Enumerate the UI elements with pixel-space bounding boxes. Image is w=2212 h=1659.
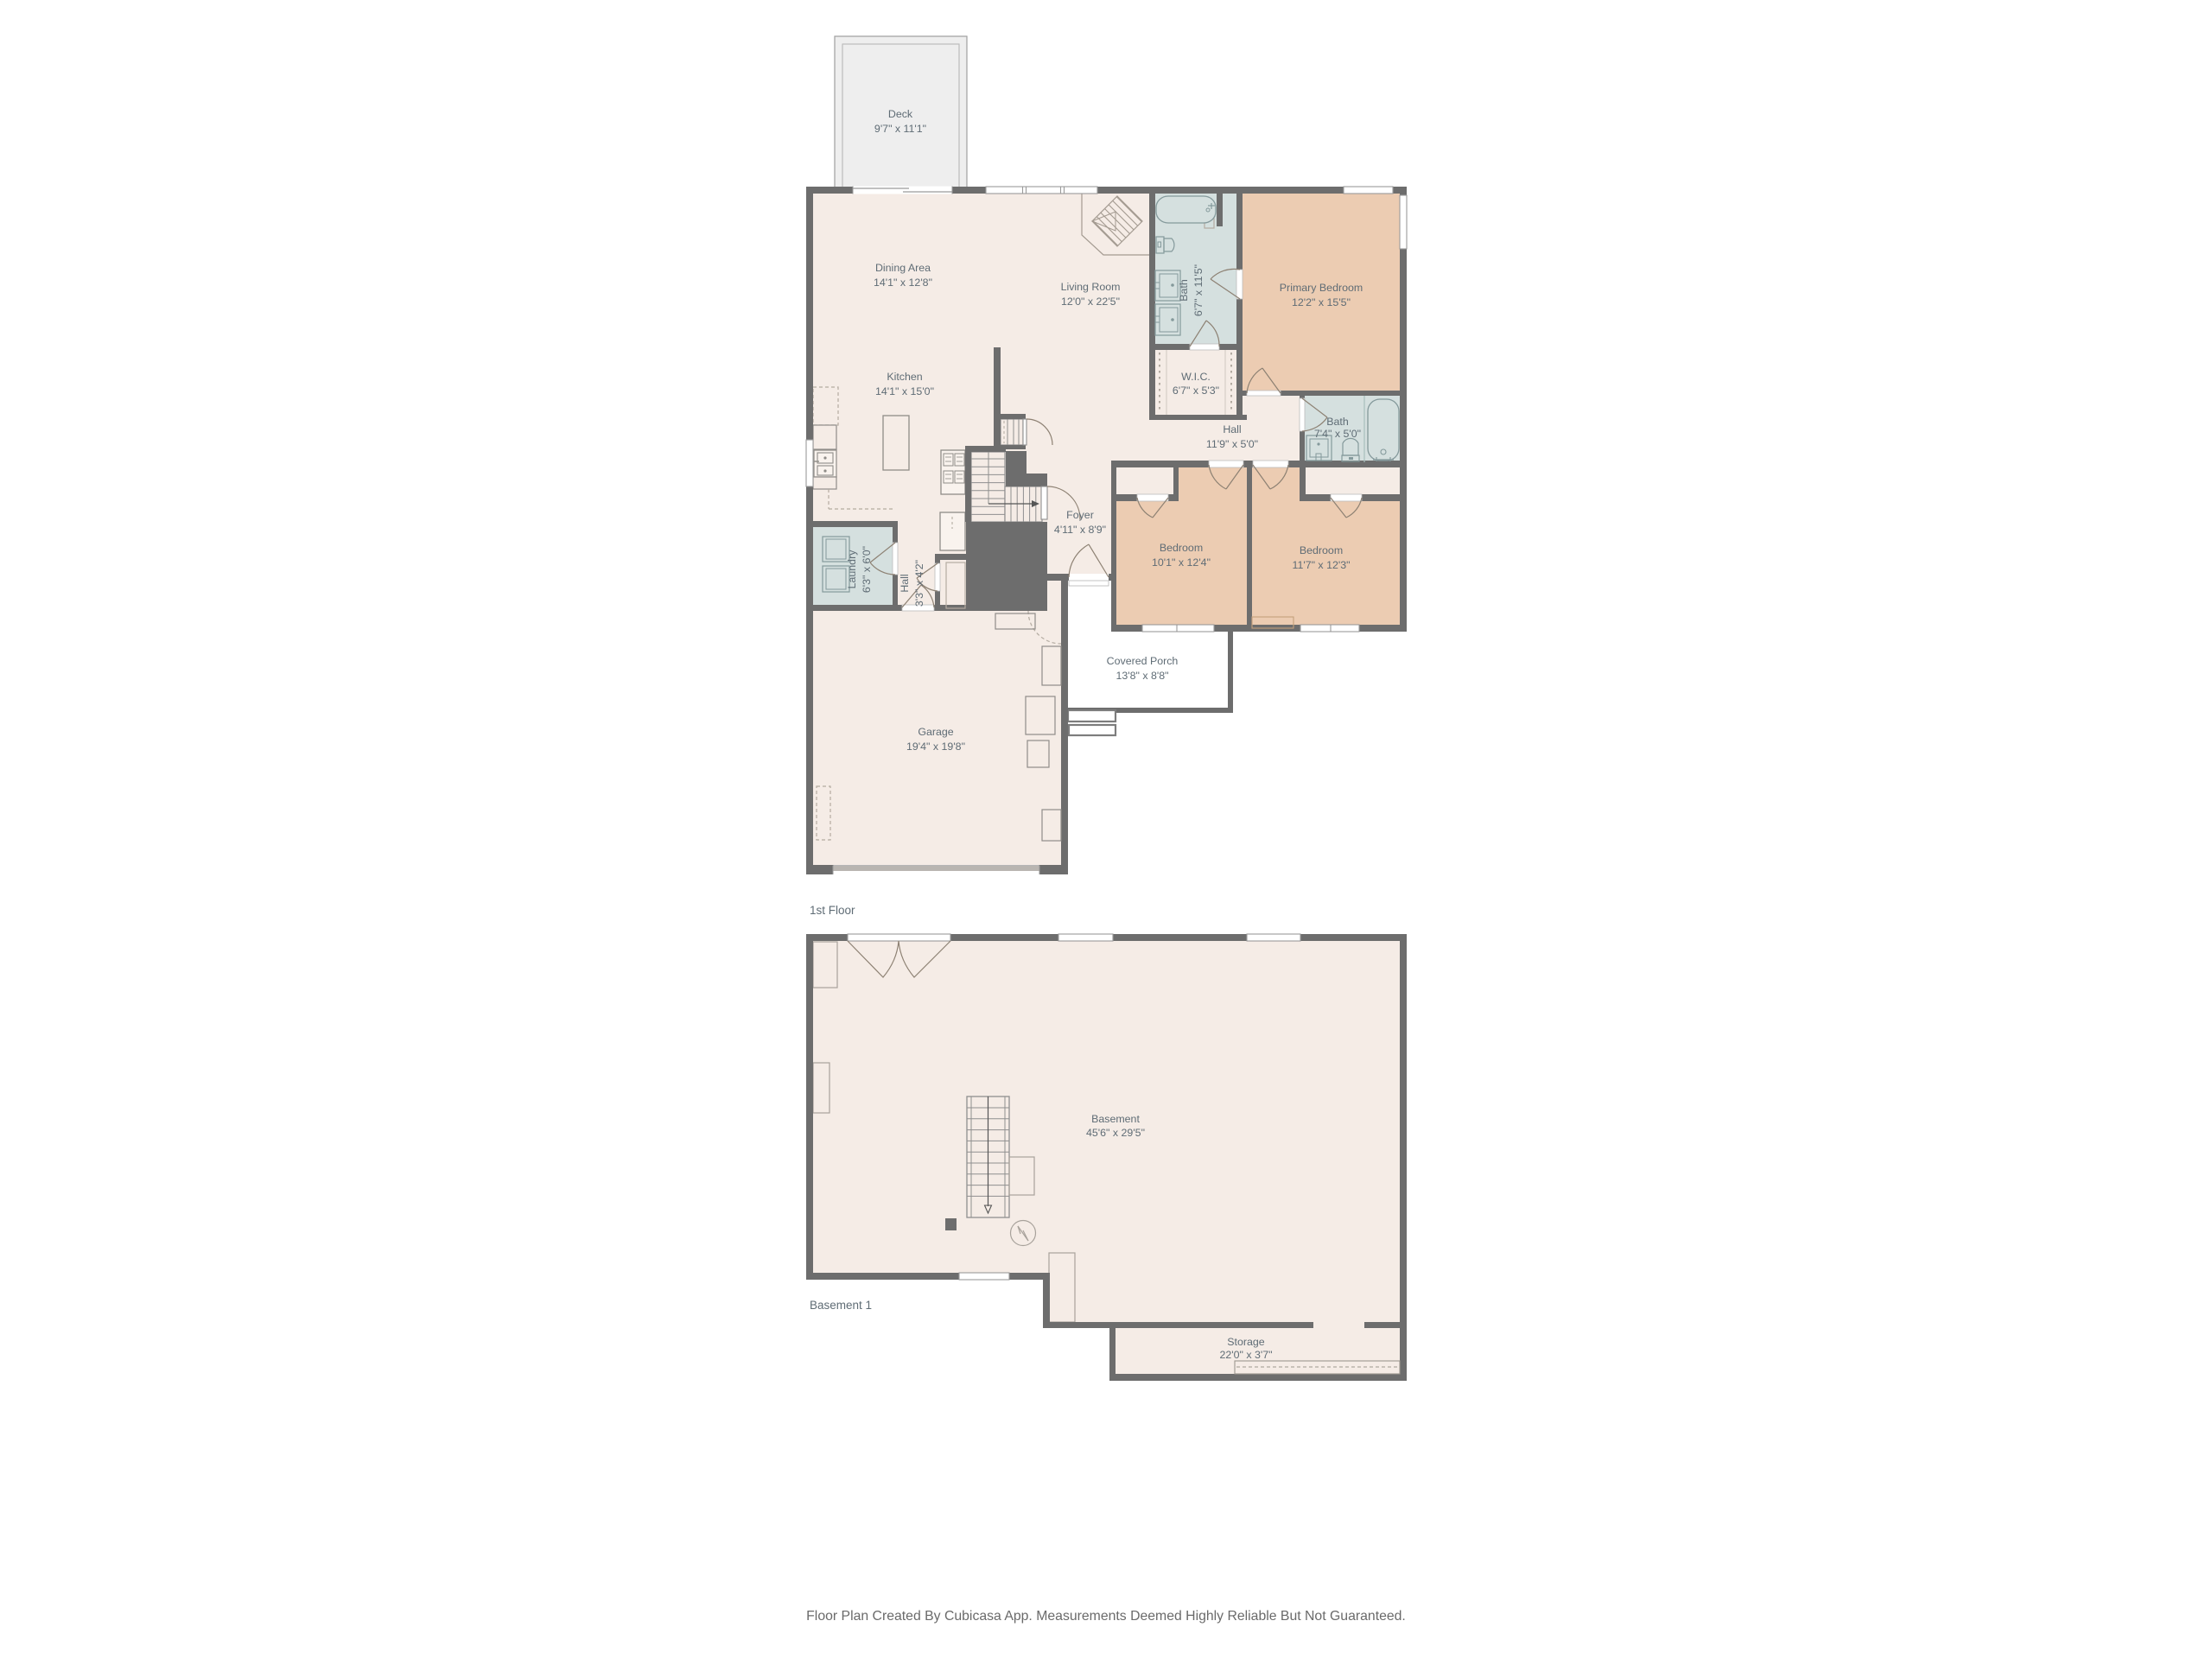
svg-text:Dining Area: Dining Area: [875, 262, 931, 274]
svg-text:Basement: Basement: [1091, 1113, 1140, 1125]
svg-text:12'0" x 22'5": 12'0" x 22'5": [1061, 296, 1120, 308]
svg-text:Garage: Garage: [918, 726, 953, 738]
svg-text:1st Floor: 1st Floor: [810, 904, 855, 917]
svg-text:Deck: Deck: [888, 108, 913, 120]
svg-text:19'4" x 19'8": 19'4" x 19'8": [906, 741, 965, 753]
svg-text:13'8" x 8'8": 13'8" x 8'8": [1116, 670, 1168, 682]
svg-text:Hall: Hall: [1223, 423, 1241, 435]
svg-text:Bedroom: Bedroom: [1160, 542, 1203, 554]
svg-text:9'7" x 11'1": 9'7" x 11'1": [874, 123, 926, 135]
svg-text:Primary Bedroom: Primary Bedroom: [1280, 282, 1363, 294]
svg-text:Storage: Storage: [1227, 1336, 1265, 1348]
svg-text:6'3" x 6'0": 6'3" x 6'0": [861, 546, 873, 593]
svg-text:22'0" x 3'7": 22'0" x 3'7": [1219, 1349, 1272, 1361]
svg-text:Basement 1: Basement 1: [810, 1299, 872, 1312]
svg-text:12'2" x 15'5": 12'2" x 15'5": [1292, 296, 1351, 308]
svg-text:W.I.C.: W.I.C.: [1181, 371, 1211, 383]
svg-text:Covered Porch: Covered Porch: [1107, 655, 1179, 667]
svg-text:11'7" x 12'3": 11'7" x 12'3": [1292, 559, 1350, 571]
svg-text:6'7" x 11'5": 6'7" x 11'5": [1192, 264, 1205, 316]
svg-text:Floor Plan Created By Cubicasa: Floor Plan Created By Cubicasa App. Meas…: [806, 1609, 1406, 1624]
svg-text:14'1" x 15'0": 14'1" x 15'0": [875, 385, 934, 397]
svg-text:14'1" x 12'8": 14'1" x 12'8": [874, 276, 932, 289]
svg-text:6'7" x 5'3": 6'7" x 5'3": [1173, 385, 1219, 397]
svg-text:Hall: Hall: [899, 574, 911, 592]
svg-text:Living Room: Living Room: [1061, 281, 1121, 293]
svg-text:Bath: Bath: [1326, 416, 1349, 428]
svg-text:Bedroom: Bedroom: [1300, 544, 1343, 556]
svg-text:11'9" x 5'0": 11'9" x 5'0": [1206, 438, 1258, 450]
svg-text:45'6" x 29'5": 45'6" x 29'5": [1086, 1127, 1145, 1139]
svg-text:Laundry: Laundry: [846, 550, 858, 589]
svg-text:Foyer: Foyer: [1066, 509, 1094, 521]
svg-text:7'4" x 5'0": 7'4" x 5'0": [1314, 428, 1361, 440]
svg-text:Kitchen: Kitchen: [887, 371, 922, 383]
svg-text:3'3" x 4'2": 3'3" x 4'2": [913, 560, 925, 607]
svg-text:Bath: Bath: [1178, 279, 1190, 302]
svg-text:4'11" x 8'9": 4'11" x 8'9": [1054, 524, 1106, 536]
svg-text:10'1" x 12'4": 10'1" x 12'4": [1152, 556, 1211, 569]
